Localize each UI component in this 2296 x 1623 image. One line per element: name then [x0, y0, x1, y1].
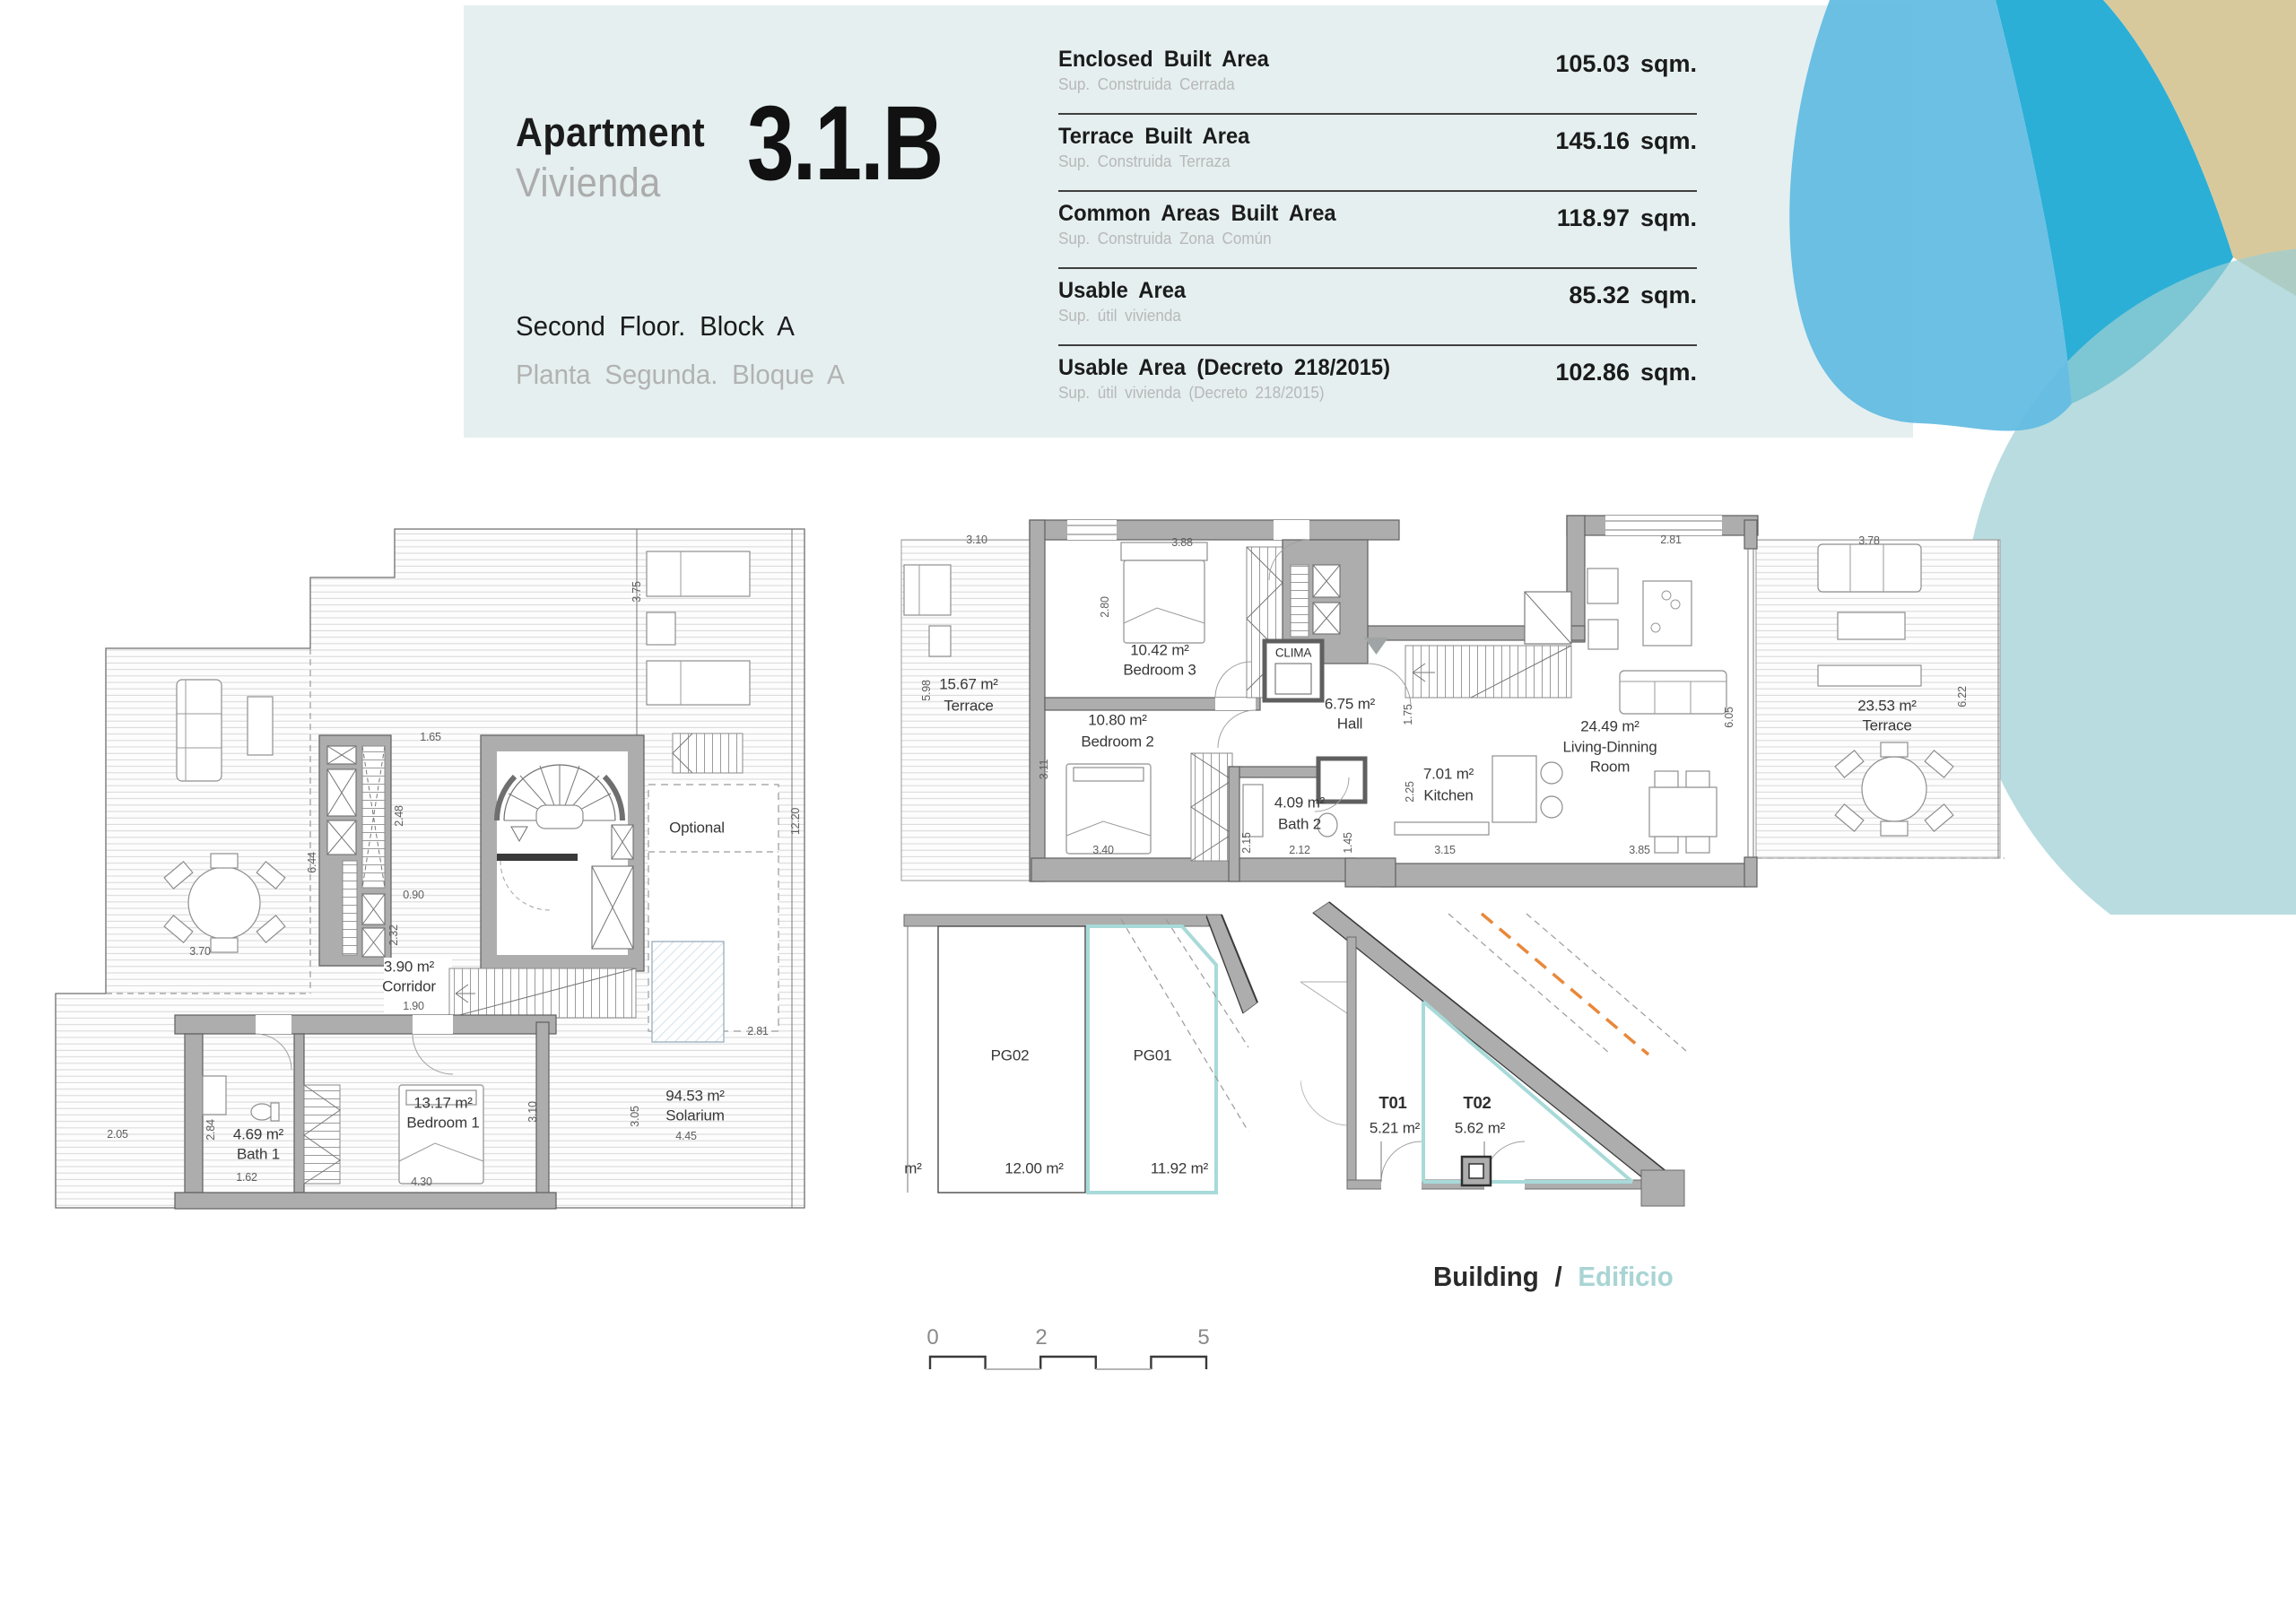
label-terrace: Terrace — [1862, 718, 1911, 733]
lower-stair — [449, 968, 636, 1018]
storage-diagram: T015.21 m²T025.62 m² — [1300, 897, 1695, 1219]
building-label-en: Building — [1433, 1261, 1539, 1292]
area-subtitle: Sup. útil vivienda (Decreto 218/2015) — [1058, 384, 1390, 403]
label-3-78: 3.78 — [1858, 535, 1880, 547]
label-bath-1: Bath 1 — [237, 1147, 280, 1162]
label-2-48: 2.48 — [394, 805, 405, 827]
label-1-62: 1.62 — [236, 1172, 257, 1184]
label-3-40: 3.40 — [1092, 845, 1114, 856]
label-3-15: 3.15 — [1434, 845, 1456, 856]
label-3-11: 3.11 — [1039, 759, 1050, 780]
area-row-usable-decreto: Usable Area (Decreto 218/2015) Sup. útil… — [1058, 346, 1697, 423]
label-t02: T02 — [1463, 1095, 1491, 1112]
label-10-80-m: 10.80 m² — [1088, 713, 1147, 728]
main-stair — [1405, 592, 1571, 698]
area-value: 102.86sqm. — [1555, 359, 1697, 386]
label-5-98: 5.98 — [921, 680, 933, 701]
label-2-80: 2.80 — [1100, 596, 1111, 618]
label-m: m² — [904, 1161, 921, 1176]
label-2-25: 2.25 — [1405, 781, 1416, 803]
area-subtitle: Sup. Construida Terraza — [1058, 152, 1249, 171]
label-6-22: 6.22 — [1957, 686, 1969, 707]
apartment-code: 3.1.B — [747, 82, 943, 204]
label-10-42-m: 10.42 m² — [1130, 643, 1189, 658]
floor-line-es: Planta Segunda. Bloque A — [516, 359, 845, 391]
label-kitchen: Kitchen — [1423, 788, 1473, 803]
scale-bar: 025 — [922, 1329, 1218, 1376]
label-2-05: 2.05 — [107, 1129, 128, 1141]
area-value: 145.16sqm. — [1555, 127, 1697, 155]
label-6-75-m: 6.75 m² — [1325, 697, 1375, 712]
area-value: 118.97sqm. — [1557, 204, 1697, 232]
label-2-81: 2.81 — [747, 1026, 769, 1037]
label-optional: Optional — [669, 820, 725, 836]
label-clima: CLIMA — [1275, 647, 1311, 659]
area-value: 85.32sqm. — [1569, 282, 1697, 309]
label-2-84: 2.84 — [205, 1119, 217, 1141]
label-bedroom-3: Bedroom 3 — [1123, 663, 1196, 678]
upper-stair — [673, 733, 743, 773]
area-title: Enclosed Built Area — [1058, 47, 1269, 73]
area-title: Usable Area — [1058, 278, 1186, 304]
label-2: 2 — [1035, 1327, 1047, 1349]
area-row-enclosed: Enclosed Built Area Sup. Construida Cerr… — [1058, 38, 1697, 115]
label-4-09-m: 4.09 m² — [1274, 795, 1325, 811]
area-title: Usable Area (Decreto 218/2015) — [1058, 355, 1390, 381]
label-hall: Hall — [1337, 716, 1363, 732]
label-5-21-m: 5.21 m² — [1370, 1121, 1420, 1136]
label-3-85: 3.85 — [1629, 845, 1650, 856]
area-subtitle: Sup. Construida Cerrada — [1058, 75, 1269, 94]
area-title: Terrace Built Area — [1058, 124, 1249, 150]
label-15-67-m: 15.67 m² — [939, 677, 998, 692]
label-3-10: 3.10 — [966, 534, 987, 546]
label-23-53-m: 23.53 m² — [1857, 699, 1917, 714]
label-2-12: 2.12 — [1289, 845, 1310, 856]
label-3-90-m: 3.90 m² — [384, 959, 434, 975]
area-title: Common Areas Built Area — [1058, 201, 1336, 227]
label-3-70: 3.70 — [189, 946, 211, 958]
label-room: Room — [1590, 759, 1631, 775]
label-0: 0 — [926, 1327, 938, 1349]
dining-table — [1649, 771, 1717, 853]
label-4-69-m: 4.69 m² — [233, 1127, 283, 1142]
label-bath-2: Bath 2 — [1278, 817, 1321, 832]
label-7-01-m: 7.01 m² — [1423, 767, 1474, 782]
label-2-81: 2.81 — [1660, 534, 1682, 546]
label-1-75: 1.75 — [1403, 704, 1414, 725]
area-subtitle: Sup. útil vivienda — [1058, 307, 1186, 325]
area-row-common: Common Areas Built Area Sup. Construida … — [1058, 192, 1697, 269]
apartment-title-es: Vivienda — [516, 160, 661, 206]
label-4-30: 4.30 — [411, 1176, 432, 1188]
area-table: Enclosed Built Area Sup. Construida Cerr… — [1058, 38, 1697, 423]
label-pg01: PG01 — [1134, 1048, 1172, 1063]
label-24-49-m: 24.49 m² — [1580, 719, 1639, 734]
label-2-32: 2.32 — [388, 924, 400, 946]
label-1-90: 1.90 — [403, 1001, 424, 1012]
label-3-10: 3.10 — [527, 1101, 539, 1123]
label-6-44: 6.44 — [307, 852, 318, 873]
bed-3 — [1121, 542, 1207, 643]
label-3-88: 3.88 — [1171, 537, 1193, 549]
floor-plan-solarium: 1.652.480.902.321.906.443.7012.202.813.7… — [27, 502, 834, 1228]
label-4-45: 4.45 — [675, 1131, 697, 1142]
sofa — [1620, 671, 1726, 714]
label-5-62-m: 5.62 m² — [1455, 1121, 1505, 1136]
console-table — [1643, 581, 1692, 646]
bed-2 — [1066, 764, 1151, 854]
label-t01: T01 — [1378, 1095, 1406, 1112]
label-12-20: 12.20 — [790, 808, 802, 835]
label-1-65: 1.65 — [420, 732, 441, 743]
floor-line-en: Second Floor. Block A — [516, 310, 795, 343]
label-3-05: 3.05 — [630, 1106, 641, 1127]
label-corridor: Corridor — [382, 979, 436, 994]
building-caption: Building / Edificio — [1433, 1261, 1674, 1293]
label-0-90: 0.90 — [403, 890, 424, 901]
label-11-92-m: 11.92 m² — [1151, 1161, 1208, 1176]
label-bedroom-1: Bedroom 1 — [406, 1115, 479, 1131]
area-row-usable: Usable Area Sup. útil vivienda 85.32sqm. — [1058, 269, 1697, 346]
parking-diagram: PG02PG01m²12.00 m²11.92 m² — [897, 897, 1283, 1206]
label-12-00-m: 12.00 m² — [1004, 1161, 1064, 1176]
label-2-15: 2.15 — [1241, 832, 1253, 854]
label-pg02: PG02 — [991, 1048, 1030, 1063]
area-subtitle: Sup. Construida Zona Común — [1058, 230, 1336, 248]
label-1-45: 1.45 — [1343, 832, 1354, 854]
label-6-05: 6.05 — [1724, 707, 1735, 728]
label-bedroom-2: Bedroom 2 — [1081, 734, 1153, 750]
label-living-dinning: Living-Dinning — [1563, 740, 1657, 755]
area-row-terrace: Terrace Built Area Sup. Construida Terra… — [1058, 115, 1697, 192]
floor-plan-main: 3.103.882.813.785.982.801.753.113.402.15… — [897, 502, 2018, 906]
label-13-17-m: 13.17 m² — [413, 1096, 473, 1111]
building-label-es: Edificio — [1578, 1261, 1673, 1292]
label-94-53-m: 94.53 m² — [665, 1089, 725, 1104]
label-5: 5 — [1197, 1327, 1209, 1349]
apartment-title-en: Apartment — [516, 109, 705, 156]
area-value: 105.03sqm. — [1555, 50, 1697, 78]
label-terrace: Terrace — [944, 699, 993, 714]
label-solarium: Solarium — [665, 1108, 724, 1124]
label-3-75: 3.75 — [631, 581, 643, 603]
